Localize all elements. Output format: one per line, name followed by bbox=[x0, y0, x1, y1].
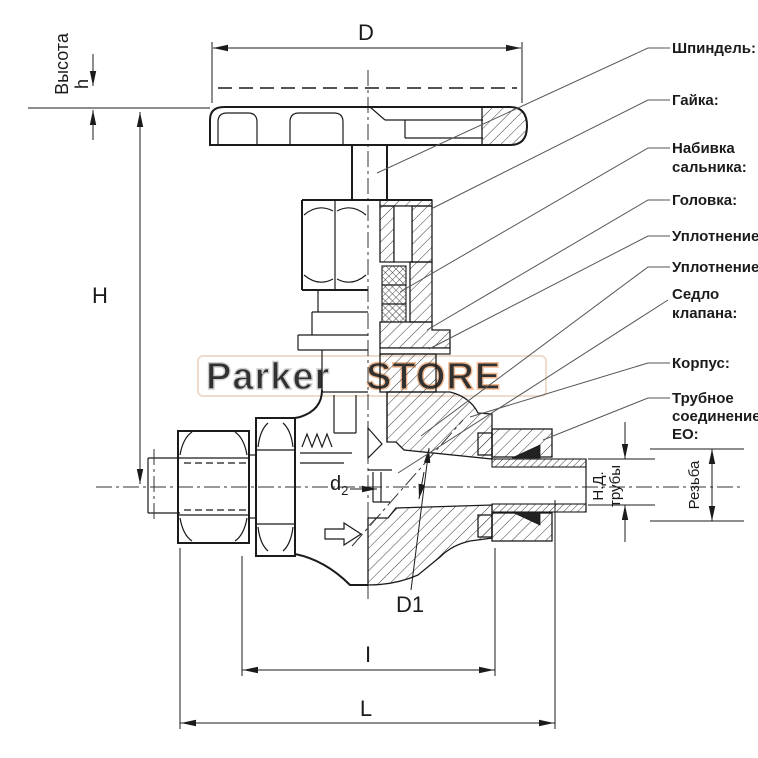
pipe-stub bbox=[148, 449, 180, 522]
dim-L: L bbox=[360, 696, 372, 721]
leader-head bbox=[427, 200, 670, 330]
gland-sleeve bbox=[394, 206, 412, 262]
label-seal-lower: Уплотнение: bbox=[672, 259, 758, 276]
label-seal-upper: Уплотнение: bbox=[672, 228, 758, 245]
dim-D: D bbox=[358, 20, 374, 45]
leader-seal-upper bbox=[429, 236, 670, 349]
bonnet-gasket bbox=[380, 348, 450, 354]
label-seat-line1: Седло bbox=[672, 286, 719, 303]
label-head: Головка: bbox=[672, 192, 737, 209]
label-spindle: Шпиндель: bbox=[672, 40, 756, 57]
watermark-text-gray: Parker bbox=[206, 356, 330, 398]
leader-packing bbox=[400, 148, 670, 292]
dim-D1: D1 bbox=[396, 592, 424, 617]
label-packing-line1: Набивка bbox=[672, 140, 735, 157]
valve-technical-drawing-page: Parker STORE bbox=[0, 0, 758, 758]
eo-fitting bbox=[478, 429, 586, 541]
spindle bbox=[352, 145, 387, 200]
body-lower-section bbox=[368, 505, 492, 585]
gland-packing bbox=[382, 262, 432, 322]
dim-d2: d2 bbox=[330, 473, 348, 498]
dim-h: h bbox=[72, 79, 92, 89]
label-nut: Гайка: bbox=[672, 92, 719, 109]
label-eo-line3: EO: bbox=[672, 426, 699, 443]
label-body: Корпус: bbox=[672, 355, 730, 372]
body-section bbox=[368, 392, 492, 585]
leader-nut bbox=[431, 100, 670, 209]
dim-I: I bbox=[365, 642, 371, 667]
leader-eo bbox=[543, 398, 670, 440]
lower-spindle-outline bbox=[300, 395, 356, 463]
valve-technical-drawing: Parker STORE bbox=[0, 0, 758, 758]
label-packing-line2: сальника: bbox=[672, 159, 747, 176]
watermark: Parker STORE bbox=[198, 356, 546, 398]
body-upper-section bbox=[387, 392, 492, 459]
dim-pipe-od-line1: Н.Д. bbox=[590, 471, 607, 500]
label-eo-line2: соединение bbox=[672, 408, 758, 425]
needle-tip bbox=[368, 428, 382, 458]
dim-pipe-od-line2: трубы bbox=[607, 465, 624, 507]
label-eo-line1: Трубное bbox=[672, 390, 734, 407]
dim-thread: Резьба bbox=[686, 460, 703, 509]
eo-nut-upper bbox=[492, 429, 552, 457]
eo-nut-lower bbox=[492, 513, 552, 541]
handwheel-rim-section bbox=[482, 107, 527, 145]
corrugated-washer bbox=[302, 434, 332, 447]
label-seat-line2: клапана: bbox=[672, 305, 737, 322]
dim-height-caption: Высота bbox=[52, 32, 72, 95]
tube bbox=[492, 459, 586, 512]
dim-H: H bbox=[92, 283, 108, 308]
